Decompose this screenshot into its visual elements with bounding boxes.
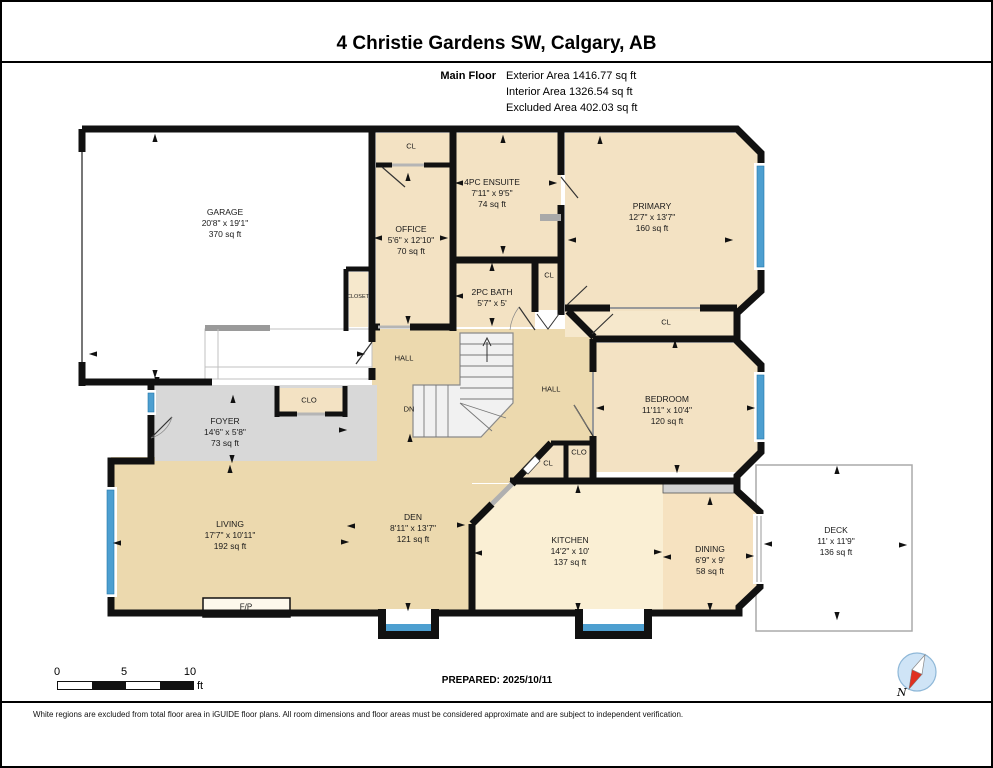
stairs-dn-label: DN — [404, 405, 415, 414]
room-label-primary: PRIMARY12'7" x 13'7"160 sq ft — [629, 201, 676, 234]
room-label-dining: DINING6'9" x 9'58 sq ft — [695, 544, 725, 577]
footer-divider — [0, 701, 993, 703]
closet-label-foyer-clo: CLO — [301, 396, 316, 405]
disclaimer-text: White regions are excluded from total fl… — [33, 710, 683, 719]
floor-plan-graphic — [0, 0, 993, 768]
fireplace-label: F/P — [240, 603, 252, 612]
closet-label-office-cl: CL — [406, 142, 416, 151]
room-label-ensuite: 4PC ENSUITE7'11" x 9'5"74 sq ft — [464, 177, 520, 210]
box-window-kitchen — [575, 609, 652, 639]
scale-unit: ft — [197, 680, 203, 692]
ensuite-vanity — [540, 214, 561, 221]
closet-label-garage-closet: CLOSET — [347, 294, 369, 300]
hall-label-left: HALL — [395, 354, 414, 363]
compass-north-label: N — [897, 686, 907, 699]
room-label-bedroom: BEDROOM11'11" x 10'4"120 sq ft — [642, 394, 692, 427]
room-label-deck: DECK11' x 11'9"136 sq ft — [817, 525, 855, 558]
room-label-foyer: FOYER14'6" x 5'8"73 sq ft — [204, 416, 246, 449]
room-label-living: LIVING17'7" x 10'11"192 sq ft — [205, 519, 256, 552]
hall-label-right: HALL — [542, 385, 561, 394]
floor-plan-page: 4 Christie Gardens SW, Calgary, AB Main … — [0, 0, 993, 768]
prepared-date: PREPARED: 2025/10/11 — [442, 675, 552, 686]
closet-label-bath-cl: CL — [544, 271, 554, 280]
scale-bar — [57, 681, 194, 690]
room-label-bath: 2PC BATH5'7" x 5' — [472, 287, 513, 309]
closet-label-bedroom-clo: CLO — [571, 448, 586, 457]
garage-landing — [205, 325, 372, 379]
closet-label-primary-cl: CL — [661, 318, 671, 327]
scale-tick-5: 5 — [121, 666, 127, 678]
scale-tick-0: 0 — [54, 666, 60, 678]
room-label-office: OFFICE5'6" x 12'10"70 sq ft — [388, 224, 435, 257]
room-label-kitchen: KITCHEN14'2" x 10'137 sq ft — [551, 535, 590, 568]
room-label-den: DEN8'11" x 13'7"121 sq ft — [390, 512, 436, 545]
room-label-garage: GARAGE20'8" x 19'1"370 sq ft — [202, 207, 249, 240]
scale-tick-10: 10 — [184, 666, 196, 678]
closet-label-hall-cl: CL — [543, 459, 553, 468]
box-window-den — [378, 609, 439, 639]
